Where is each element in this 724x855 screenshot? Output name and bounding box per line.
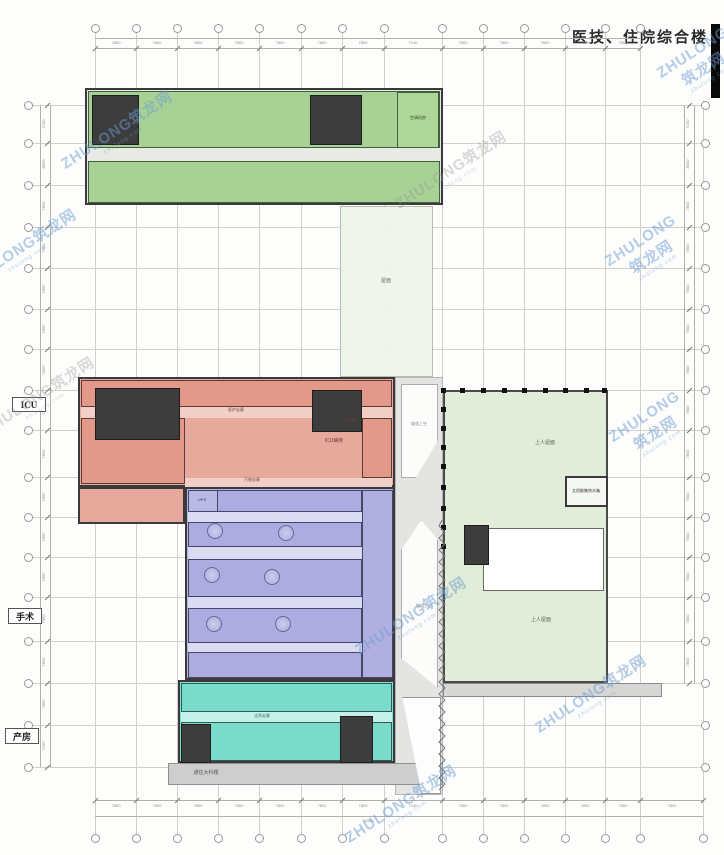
- dimension-line: [50, 105, 51, 767]
- grid-bubble: [701, 139, 710, 148]
- grid-bubble: [380, 834, 389, 843]
- column-square: [481, 388, 486, 393]
- roof-stair-core: [464, 525, 489, 565]
- plan-label: 洁净走廊: [254, 714, 270, 718]
- dimension-label: 7800: [42, 658, 46, 667]
- column-square: [441, 464, 446, 469]
- grid-bubble: [701, 637, 710, 646]
- delivery-rooms-1: [181, 683, 392, 712]
- dimension-label: 7800: [42, 573, 46, 582]
- column-square: [563, 388, 568, 393]
- grid-bubble: [24, 679, 33, 688]
- north-wing-upper-rooms: [88, 91, 440, 148]
- dimension-label: 7800: [42, 449, 46, 458]
- dimension-label: 7800: [686, 615, 690, 624]
- grid-bubble: [132, 24, 141, 33]
- north-core-west: [92, 95, 139, 145]
- surgery-corridor-1: [188, 512, 362, 522]
- plan-label: 通往大科楼: [194, 771, 219, 776]
- plan-label: UPS: [198, 498, 206, 502]
- ahu-room: [397, 92, 439, 148]
- dimension-label: 7800: [42, 325, 46, 334]
- dimension-label: 7800: [42, 615, 46, 624]
- dimension-label: 7800: [618, 804, 627, 808]
- plan-label: 空调机房: [410, 116, 426, 120]
- dimension-line: [694, 105, 695, 683]
- grid-bubble: [338, 24, 347, 33]
- dimension-label: 7800: [686, 449, 690, 458]
- dimension-label: 51060: [362, 819, 373, 823]
- plan-label: 屋面: [381, 279, 391, 284]
- dimension-label: 7800: [111, 41, 120, 45]
- dimension-label: 7800: [193, 804, 202, 808]
- plan-label: 上人屋面: [535, 441, 555, 446]
- side-label-ICU: ICU: [12, 397, 46, 412]
- dimension-label: 7800: [686, 243, 690, 252]
- grid-bubble: [338, 834, 347, 843]
- grid-bubble: [438, 834, 447, 843]
- dimension-label: 7800: [540, 41, 549, 45]
- dimension-label: 7800: [686, 365, 690, 374]
- grid-bubble: [24, 426, 33, 435]
- watermark-main: ZHULONG筑龙网: [606, 387, 695, 463]
- dimension-label: 7800: [581, 41, 590, 45]
- floor-plan-sheet: 医技、住院综合楼 7800780078007800780078007800714…: [0, 0, 724, 855]
- grid-bubble: [479, 834, 488, 843]
- dimension-label: 7200: [686, 120, 690, 129]
- expansion-joint-zigzag: [438, 520, 446, 795]
- operating-table-circle: [204, 567, 220, 583]
- dimension-label: 7800: [686, 573, 690, 582]
- column-square: [441, 506, 446, 511]
- dimension-label: 7800: [686, 533, 690, 542]
- dimension-label: 7800: [458, 41, 467, 45]
- icu-core-west: [95, 388, 180, 440]
- grid-bubble: [701, 426, 710, 435]
- north-wing-lower-rooms: [88, 161, 440, 203]
- dimension-label: 7800: [458, 804, 467, 808]
- dimension-label: 7800: [152, 41, 161, 45]
- column-square: [502, 388, 507, 393]
- operating-table-circle: [206, 616, 222, 632]
- dimension-label: 7800: [686, 202, 690, 211]
- dimension-label: 8000: [686, 160, 690, 169]
- watermark-sub: zhulong.com: [627, 419, 698, 468]
- grid-bubble: [701, 553, 710, 562]
- grid-bubble: [561, 834, 570, 843]
- delivery-core-east: [340, 716, 373, 763]
- dimension-label: 7800: [234, 41, 243, 45]
- grid-bubble: [24, 763, 33, 772]
- plan-label: 护士站: [344, 418, 356, 422]
- grid-bubble: [636, 834, 645, 843]
- grid-bubble: [24, 305, 33, 314]
- grid-bubble: [297, 24, 306, 33]
- dimension-label: 7800: [618, 41, 627, 45]
- grid-bubble: [520, 24, 529, 33]
- icu-core-east: [312, 390, 362, 432]
- dimension-line: [95, 816, 703, 817]
- dimension-label: 7800: [42, 284, 46, 293]
- watermark: ZHULONG筑龙网zhulong.com: [602, 211, 694, 292]
- operating-table-circle: [264, 569, 280, 585]
- grid-bubble: [701, 513, 710, 522]
- icu-right-rooms: [362, 418, 392, 478]
- watermark-main: ZHULONG筑龙网: [602, 211, 691, 287]
- dimension-label: 7800: [359, 41, 368, 45]
- side-label-产房: 产房: [5, 728, 39, 744]
- dimension-label: 7800: [276, 41, 285, 45]
- grid-bubble: [255, 24, 264, 33]
- dimension-label: 7800: [152, 804, 161, 808]
- dimension-label: 7800: [42, 202, 46, 211]
- dimension-label: 7800: [540, 804, 549, 808]
- dimension-label: 7800: [667, 804, 676, 808]
- dimension-label: 8000: [42, 160, 46, 169]
- icu-west-leg: [78, 487, 185, 524]
- dimension-label: 7800: [42, 493, 46, 502]
- grid-bubble: [520, 834, 529, 843]
- dimension-line: [95, 38, 640, 39]
- roof-void: [483, 528, 604, 591]
- grid-bubble: [699, 834, 708, 843]
- dimension-label: 7800: [193, 41, 202, 45]
- operating-table-circle: [278, 525, 294, 541]
- grid-bubble: [173, 834, 182, 843]
- plan-label: 太阳能集热水箱: [572, 489, 600, 493]
- grid-bubble: [701, 593, 710, 602]
- grid-bubble: [601, 834, 610, 843]
- dimension-label: 7800: [317, 41, 326, 45]
- column-square: [441, 388, 446, 393]
- dimension-label: 7800: [42, 700, 46, 709]
- column-square: [441, 445, 446, 450]
- mid-roof-strip: [340, 206, 433, 377]
- grid-col-line: [640, 30, 641, 835]
- dimension-label: 7800: [42, 365, 46, 374]
- grid-bubble: [636, 24, 645, 33]
- dimension-line: [95, 800, 703, 801]
- dimension-label: 7800: [111, 804, 120, 808]
- grid-bubble: [24, 181, 33, 190]
- grid-bubble: [701, 101, 710, 110]
- plan-label: 坡道上空: [416, 604, 432, 608]
- dimension-label: 7800: [581, 804, 590, 808]
- icu-soil-corridor: [185, 478, 392, 487]
- grid-bubble: [24, 593, 33, 602]
- grid-bubble: [24, 473, 33, 482]
- side-label-手术: 手术: [8, 608, 42, 624]
- grid-bubble: [601, 24, 610, 33]
- grid-bubble: [561, 24, 570, 33]
- dimension-label: 7800: [686, 325, 690, 334]
- plan-label: 医护走廊: [228, 408, 244, 412]
- grid-bubble: [214, 24, 223, 33]
- delivery-core-west: [181, 724, 211, 763]
- dimension-label: 7800: [42, 533, 46, 542]
- dimension-label: 7800: [234, 804, 243, 808]
- grid-bubble: [701, 264, 710, 273]
- dimension-label: 7800: [317, 804, 326, 808]
- grid-bubble: [214, 834, 223, 843]
- column-square: [522, 388, 527, 393]
- grid-bubble: [255, 834, 264, 843]
- grid-bubble: [24, 513, 33, 522]
- grid-bubble: [479, 24, 488, 33]
- plan-label: 坡道上空: [411, 422, 427, 426]
- surgery-corridor-2: [188, 547, 362, 559]
- column-square: [602, 388, 607, 393]
- column-square: [543, 388, 548, 393]
- grid-bubble: [24, 101, 33, 110]
- column-square: [441, 426, 446, 431]
- grid-bubble: [24, 386, 33, 395]
- dimension-label: 7800: [276, 804, 285, 808]
- plan-label: 上人屋面: [531, 618, 551, 623]
- surgery-east-rooms: [362, 490, 393, 678]
- grid-bubble: [24, 553, 33, 562]
- surgery-corridor-4: [188, 643, 362, 652]
- grid-bubble: [24, 139, 33, 148]
- north-wing-corridor: [88, 148, 440, 161]
- dimension-label: 7200: [42, 742, 46, 751]
- grid-bubble: [24, 345, 33, 354]
- title-bar: [711, 24, 720, 98]
- north-core-mid: [310, 95, 362, 145]
- dimension-label: 7800: [499, 804, 508, 808]
- dimension-label: 7800: [686, 284, 690, 293]
- plan-label: 污物走廊: [244, 478, 260, 482]
- grid-bubble: [438, 24, 447, 33]
- grid-bubble: [701, 305, 710, 314]
- grid-bubble: [173, 24, 182, 33]
- walkway-band: [443, 683, 662, 697]
- grid-bubble: [701, 679, 710, 688]
- surgery-corridor-3: [188, 597, 362, 608]
- dimension-label: 7800: [499, 41, 508, 45]
- dimension-label: 7200: [42, 120, 46, 129]
- grid-bubble: [24, 223, 33, 232]
- dimension-label: 7800: [686, 493, 690, 502]
- grid-bubble: [701, 223, 710, 232]
- grid-bubble: [701, 386, 710, 395]
- grid-bubble: [701, 345, 710, 354]
- grid-bubble: [380, 24, 389, 33]
- grid-bubble: [132, 834, 141, 843]
- column-square: [584, 388, 589, 393]
- dimension-line: [684, 105, 685, 683]
- grid-bubble: [91, 834, 100, 843]
- dimension-label: 7800: [686, 658, 690, 667]
- grid-bubble: [91, 24, 100, 33]
- dimension-label: 7800: [686, 406, 690, 415]
- surgery-rooms-5: [188, 652, 362, 678]
- dimension-label: 7800: [359, 804, 368, 808]
- grid-bubble: [701, 181, 710, 190]
- dimension-label: 7800: [42, 243, 46, 252]
- column-square: [460, 388, 465, 393]
- grid-bubble: [24, 637, 33, 646]
- grid-bubble: [701, 763, 710, 772]
- grid-bubble: [701, 473, 710, 482]
- column-square: [441, 407, 446, 412]
- plan-label: ICU病房: [325, 439, 344, 444]
- dimension-label: 7140: [409, 41, 418, 45]
- dimension-label: 7140: [409, 804, 418, 808]
- grid-bubble: [701, 721, 710, 730]
- operating-table-circle: [275, 616, 291, 632]
- column-square: [441, 485, 446, 490]
- operating-table-circle: [207, 523, 223, 539]
- grid-bubble: [24, 264, 33, 273]
- grid-bubble: [297, 834, 306, 843]
